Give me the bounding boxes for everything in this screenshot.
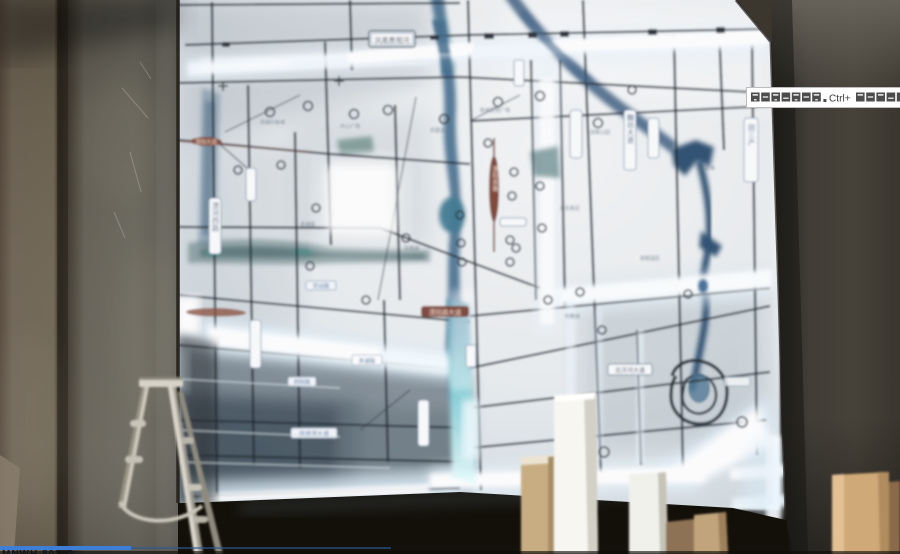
svg-text:Ctrl+: Ctrl+ [829, 94, 851, 105]
